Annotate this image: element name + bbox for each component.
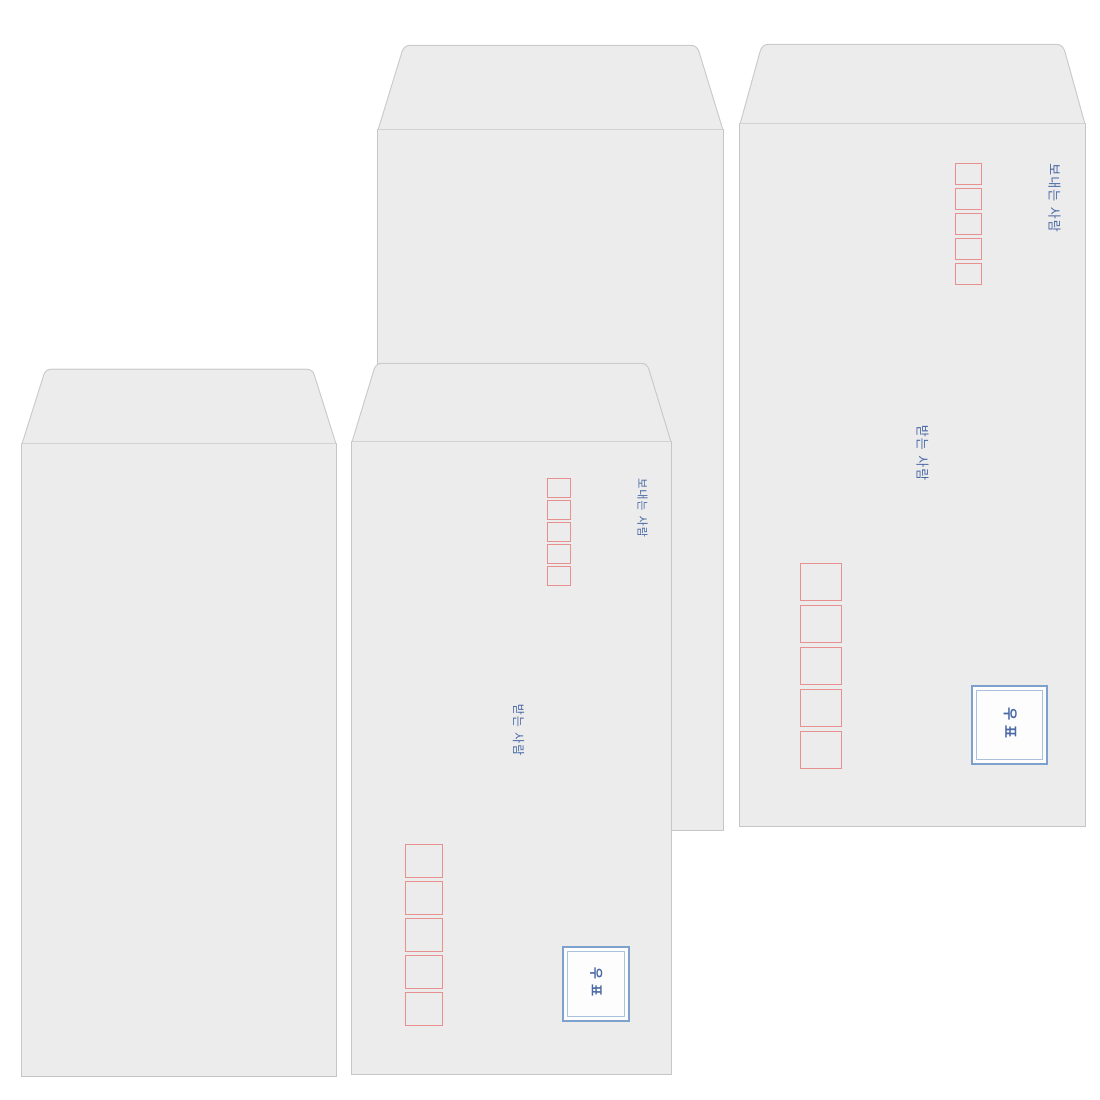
- envelope-flap: [377, 44, 724, 130]
- postal-code-box: [800, 731, 842, 769]
- postal-code-box: [955, 163, 982, 185]
- stamp-box: 우표: [971, 685, 1048, 765]
- postal-code-box: [955, 263, 982, 285]
- envelope-left-back: [21, 368, 337, 1077]
- postal-code-box: [955, 188, 982, 210]
- envelope-middle-front: 보내는 사람 받는 사람 우표: [351, 362, 672, 1075]
- postal-code-box: [800, 689, 842, 727]
- stamp-label: 우표: [590, 967, 603, 1001]
- postal-code-box: [547, 544, 571, 564]
- envelope-right-front: 보내는 사람 받는 사람 우표: [739, 43, 1086, 827]
- postal-code-box: [547, 500, 571, 520]
- postal-code-box: [547, 478, 571, 498]
- postal-code-box: [800, 605, 842, 643]
- postal-code-box: [405, 955, 443, 989]
- envelope-flap: [21, 368, 337, 444]
- recipient-label: 받는 사람: [916, 425, 929, 481]
- stamp-label: 우표: [1003, 707, 1017, 743]
- postal-code-box: [405, 992, 443, 1026]
- postal-code-box: [405, 881, 443, 915]
- postal-code-box: [405, 844, 443, 878]
- envelope-flap: [739, 43, 1086, 124]
- stamp-box: 우표: [562, 946, 630, 1022]
- sender-postal-code-boxes: [547, 478, 571, 586]
- postal-code-box: [955, 238, 982, 260]
- postal-code-box: [547, 566, 571, 586]
- envelope-product-image: 보내는 사람 받는 사람 우표 보내는 사람 받는 사람 우표: [0, 0, 1100, 1100]
- recipient-label: 받는 사람: [512, 704, 524, 757]
- postal-code-box: [547, 522, 571, 542]
- sender-label: 보내는 사람: [1048, 163, 1061, 232]
- sender-label: 보내는 사람: [636, 478, 647, 538]
- postal-code-box: [955, 213, 982, 235]
- recipient-postal-code-boxes: [800, 563, 842, 769]
- recipient-postal-code-boxes: [405, 844, 443, 1026]
- envelope-body: [21, 443, 337, 1077]
- sender-postal-code-boxes: [955, 163, 982, 285]
- envelope-flap: [351, 362, 672, 442]
- postal-code-box: [800, 647, 842, 685]
- postal-code-box: [405, 918, 443, 952]
- postal-code-box: [800, 563, 842, 601]
